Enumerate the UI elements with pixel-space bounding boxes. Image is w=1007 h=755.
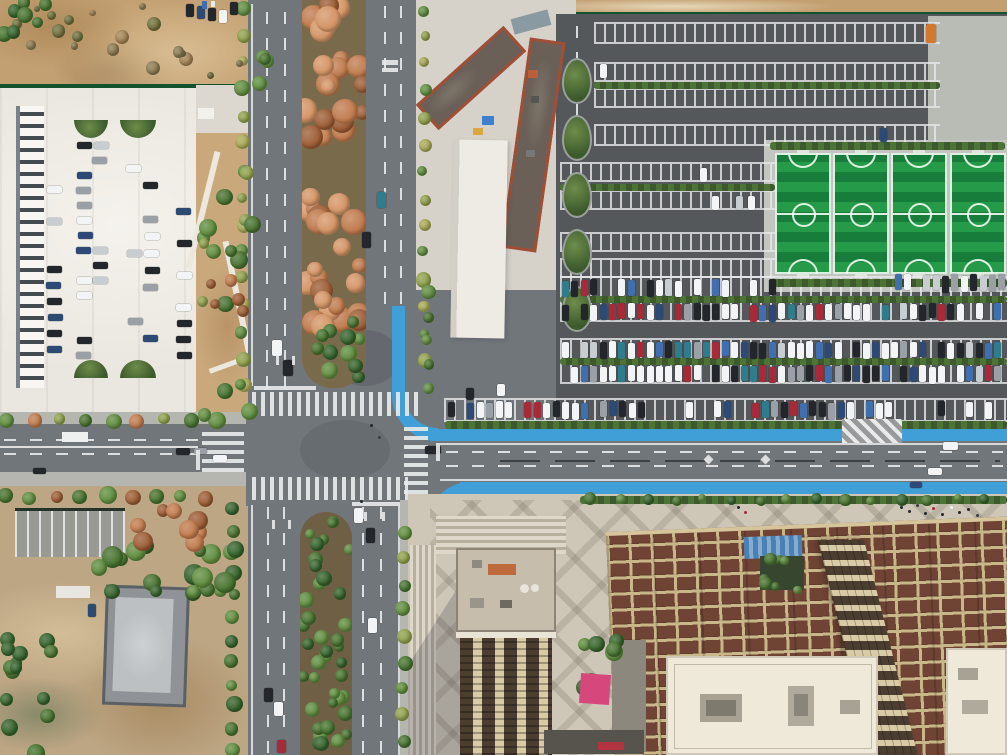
car (872, 366, 879, 382)
car (724, 401, 731, 418)
parking-row-lines (594, 88, 940, 108)
tree (240, 166, 254, 180)
tree (234, 80, 250, 96)
car (778, 343, 785, 359)
tree (396, 682, 408, 694)
tree (397, 551, 410, 564)
teardrop-island (562, 229, 592, 275)
tree (40, 709, 55, 724)
yellow-equipment (473, 128, 483, 135)
car (637, 342, 644, 357)
car (88, 604, 96, 617)
lot-entrance-hatch (842, 419, 902, 443)
car (366, 528, 375, 543)
car (923, 275, 930, 291)
car (684, 304, 691, 320)
car (590, 305, 597, 321)
car (647, 342, 654, 358)
car (675, 304, 682, 320)
planted-median (560, 358, 1007, 365)
car (656, 342, 663, 358)
car (910, 342, 917, 357)
tree (421, 335, 432, 346)
car (957, 304, 964, 321)
car (712, 196, 719, 210)
tree (54, 413, 65, 424)
tree (225, 743, 239, 755)
car (825, 366, 832, 383)
roof-unit (526, 150, 535, 157)
road-marking (704, 455, 714, 465)
tree (26, 40, 36, 50)
lane-marking (440, 443, 1007, 445)
car (77, 202, 92, 209)
tree (0, 693, 13, 706)
tree (397, 629, 412, 644)
car (816, 304, 823, 320)
car (47, 298, 62, 305)
car (900, 341, 907, 358)
pedestrian (360, 500, 363, 503)
car (998, 274, 1005, 290)
tree (225, 635, 238, 648)
pink-canopy (579, 673, 611, 705)
entrance-canopy (511, 9, 552, 34)
tree (210, 299, 220, 309)
planted-median (594, 82, 940, 89)
crosswalk (202, 428, 244, 472)
car (806, 305, 813, 321)
road-marking (0, 446, 198, 448)
park-shed (198, 108, 214, 119)
tree (47, 11, 56, 20)
rooftop-unit (962, 700, 988, 714)
car (581, 280, 588, 296)
car (797, 305, 804, 321)
road-marking (364, 512, 367, 521)
car (486, 403, 493, 418)
tree (150, 585, 162, 597)
car (590, 279, 597, 295)
car (600, 401, 607, 416)
car (797, 343, 804, 359)
car (882, 305, 889, 321)
tree (311, 342, 324, 355)
car (919, 305, 926, 321)
car (590, 342, 597, 358)
road-marking (292, 356, 295, 365)
tree (235, 326, 248, 339)
pedestrian (908, 510, 911, 513)
service-area (544, 730, 644, 754)
tree (32, 17, 43, 28)
road-marking (761, 455, 771, 465)
tower-unit (500, 600, 512, 608)
lane-marking (251, 505, 253, 755)
tree (237, 305, 249, 317)
car (33, 468, 46, 474)
tree (252, 76, 267, 91)
lane-marking (4, 439, 198, 441)
car (828, 403, 835, 420)
car (736, 196, 743, 210)
car (929, 367, 936, 384)
tree (51, 491, 63, 503)
pedestrian (378, 436, 381, 439)
car (712, 365, 719, 381)
tree (420, 84, 432, 96)
tree (179, 520, 199, 540)
car (144, 250, 159, 257)
car (581, 403, 588, 420)
car (694, 342, 701, 359)
car (647, 366, 654, 382)
tree (236, 352, 251, 367)
car (48, 314, 63, 321)
car (809, 401, 816, 416)
half-round-island (74, 360, 108, 378)
tree (756, 496, 766, 506)
car (694, 279, 701, 295)
tree (139, 3, 146, 10)
tree (921, 495, 933, 507)
car (938, 342, 945, 358)
tower-unit (472, 560, 482, 568)
car (700, 168, 707, 182)
car (876, 403, 883, 419)
tree (237, 193, 247, 203)
car (609, 366, 616, 382)
car (143, 284, 158, 291)
tree (423, 383, 434, 394)
car (750, 366, 757, 383)
car (844, 365, 851, 381)
car (714, 401, 721, 417)
pedestrian (370, 424, 373, 427)
lane-marking (500, 460, 1000, 462)
car (177, 352, 192, 359)
car (910, 304, 917, 319)
tree (107, 43, 119, 55)
tree (173, 46, 185, 58)
tree (225, 502, 238, 515)
tree (417, 166, 427, 176)
car (618, 279, 625, 296)
car (835, 366, 842, 382)
car (362, 232, 371, 248)
car (562, 402, 569, 418)
car (618, 365, 625, 382)
road-marking (288, 520, 291, 529)
car (900, 303, 907, 319)
car (825, 343, 832, 359)
car (752, 403, 759, 418)
tree (421, 285, 436, 300)
car (684, 342, 691, 358)
car (910, 367, 917, 383)
tree (198, 491, 214, 507)
car (77, 142, 92, 149)
tree (64, 15, 74, 25)
car (853, 342, 860, 357)
car (77, 277, 92, 284)
tree (184, 413, 198, 427)
car (562, 281, 569, 297)
car (186, 4, 194, 17)
car (571, 281, 578, 298)
car (600, 304, 607, 319)
tree (227, 525, 240, 538)
tree (236, 60, 243, 67)
road-marking (272, 520, 275, 529)
lane-marking (384, 4, 386, 304)
rooftop-unit (706, 700, 736, 716)
car (947, 343, 954, 359)
car (771, 401, 778, 417)
tree (174, 490, 186, 502)
car (78, 232, 93, 239)
car (684, 366, 691, 382)
car (806, 365, 813, 381)
car (748, 196, 755, 210)
car (722, 304, 729, 319)
tree (398, 526, 412, 540)
car (731, 366, 738, 382)
tree (398, 656, 413, 671)
tree (839, 494, 851, 506)
car (675, 342, 682, 357)
tree (347, 316, 359, 328)
car (600, 367, 607, 383)
car (838, 402, 845, 417)
tree (727, 496, 736, 505)
car (769, 279, 776, 295)
parking-row-lines (594, 62, 940, 82)
car (76, 352, 91, 359)
car (93, 247, 108, 254)
car (618, 342, 625, 359)
tree (340, 329, 356, 345)
lane-marking (251, 4, 253, 386)
tree (216, 189, 232, 205)
car (819, 402, 826, 417)
car (790, 401, 797, 416)
tower-tank (531, 584, 539, 592)
car (769, 367, 776, 383)
car (467, 403, 474, 420)
car (788, 367, 795, 382)
parking-row-lines (560, 162, 775, 182)
car (618, 303, 625, 319)
car (910, 482, 922, 488)
tree (106, 414, 121, 429)
road-marking (352, 502, 400, 506)
car (863, 366, 870, 383)
tree (1, 719, 18, 736)
car (272, 340, 282, 356)
tree (197, 296, 208, 307)
tree (199, 219, 217, 237)
car (866, 401, 873, 416)
car (781, 402, 788, 418)
car (825, 304, 832, 320)
car (656, 366, 663, 382)
lane-marking (4, 453, 198, 455)
car (980, 276, 987, 291)
tree (149, 489, 164, 504)
tree (72, 31, 83, 42)
car (694, 365, 701, 380)
tree (896, 494, 908, 506)
half-round-island (74, 120, 108, 138)
tree (39, 0, 52, 11)
car (919, 342, 926, 357)
car (712, 279, 719, 296)
car (985, 365, 992, 381)
car (77, 217, 92, 224)
pedestrian (744, 511, 747, 514)
tree (129, 414, 144, 429)
car (675, 281, 682, 297)
car (762, 401, 769, 417)
planted-median (445, 421, 1007, 429)
tree (419, 219, 431, 231)
car (524, 402, 531, 418)
tree (236, 1, 251, 16)
car (844, 303, 851, 319)
car (629, 403, 636, 418)
pedestrian (967, 508, 970, 511)
car (759, 365, 766, 381)
car (943, 442, 958, 450)
tree (125, 490, 141, 506)
tree (395, 707, 409, 721)
car (961, 276, 968, 292)
car (797, 366, 804, 381)
teardrop-island (562, 172, 592, 218)
tree (0, 488, 13, 502)
tree (398, 735, 412, 749)
parking-row-lines (560, 258, 775, 278)
planted-median (560, 184, 775, 191)
car (989, 275, 996, 292)
tree (226, 680, 237, 691)
car (77, 172, 92, 179)
car (628, 280, 635, 296)
car (208, 8, 216, 21)
car (703, 342, 710, 357)
crosswalk (252, 477, 408, 500)
pedestrian (737, 506, 740, 509)
tree (672, 496, 682, 506)
car (712, 304, 719, 320)
pedestrian (950, 506, 953, 509)
tree (584, 492, 596, 504)
red-banner (598, 742, 624, 750)
car (177, 272, 192, 279)
lane-marking (446, 451, 1003, 453)
car (77, 337, 92, 344)
car (637, 366, 644, 382)
car (553, 401, 560, 417)
tree (104, 584, 119, 599)
car (957, 343, 964, 358)
car (47, 186, 62, 193)
car (145, 267, 160, 274)
car (637, 304, 644, 319)
car (933, 275, 940, 290)
car (863, 343, 870, 359)
car (638, 402, 645, 418)
half-round-island (120, 360, 156, 378)
tree (225, 274, 237, 286)
car (722, 280, 729, 297)
car (731, 304, 738, 319)
car (970, 274, 977, 291)
rooftop-unit (958, 668, 978, 680)
truck (62, 432, 88, 442)
lane-marking (440, 479, 1007, 481)
car (904, 274, 911, 289)
sign (211, 1, 215, 7)
car (665, 366, 672, 382)
car (778, 366, 785, 382)
rooftop-unit (794, 694, 808, 716)
shed (56, 586, 90, 598)
car (957, 365, 964, 382)
tree (7, 25, 21, 39)
car (994, 342, 1001, 358)
car (128, 318, 143, 325)
road-marking (382, 68, 398, 72)
car (872, 342, 879, 358)
car (377, 192, 386, 208)
car (47, 266, 62, 273)
tree (226, 696, 242, 712)
tree (979, 494, 989, 504)
car (966, 366, 973, 381)
tree (91, 559, 107, 575)
car (277, 740, 286, 753)
tree (198, 408, 212, 422)
parking-row-lines (594, 22, 940, 44)
tower-hvac (488, 564, 516, 575)
car (47, 346, 62, 353)
car (788, 342, 795, 358)
tree (771, 582, 780, 591)
car (628, 303, 635, 318)
car (177, 320, 192, 327)
car (885, 402, 892, 417)
car (694, 303, 701, 320)
tree (780, 556, 789, 565)
car (496, 401, 503, 417)
tree (419, 57, 430, 68)
road-marking (254, 386, 316, 390)
car (274, 702, 283, 716)
car (976, 303, 983, 318)
tree (225, 722, 238, 735)
car (145, 233, 160, 240)
tree (866, 497, 875, 506)
car (264, 688, 273, 702)
tree (217, 383, 233, 399)
car (951, 274, 958, 290)
pedestrian (958, 511, 961, 514)
tree (10, 661, 23, 674)
car (816, 342, 823, 359)
tree (420, 195, 431, 206)
